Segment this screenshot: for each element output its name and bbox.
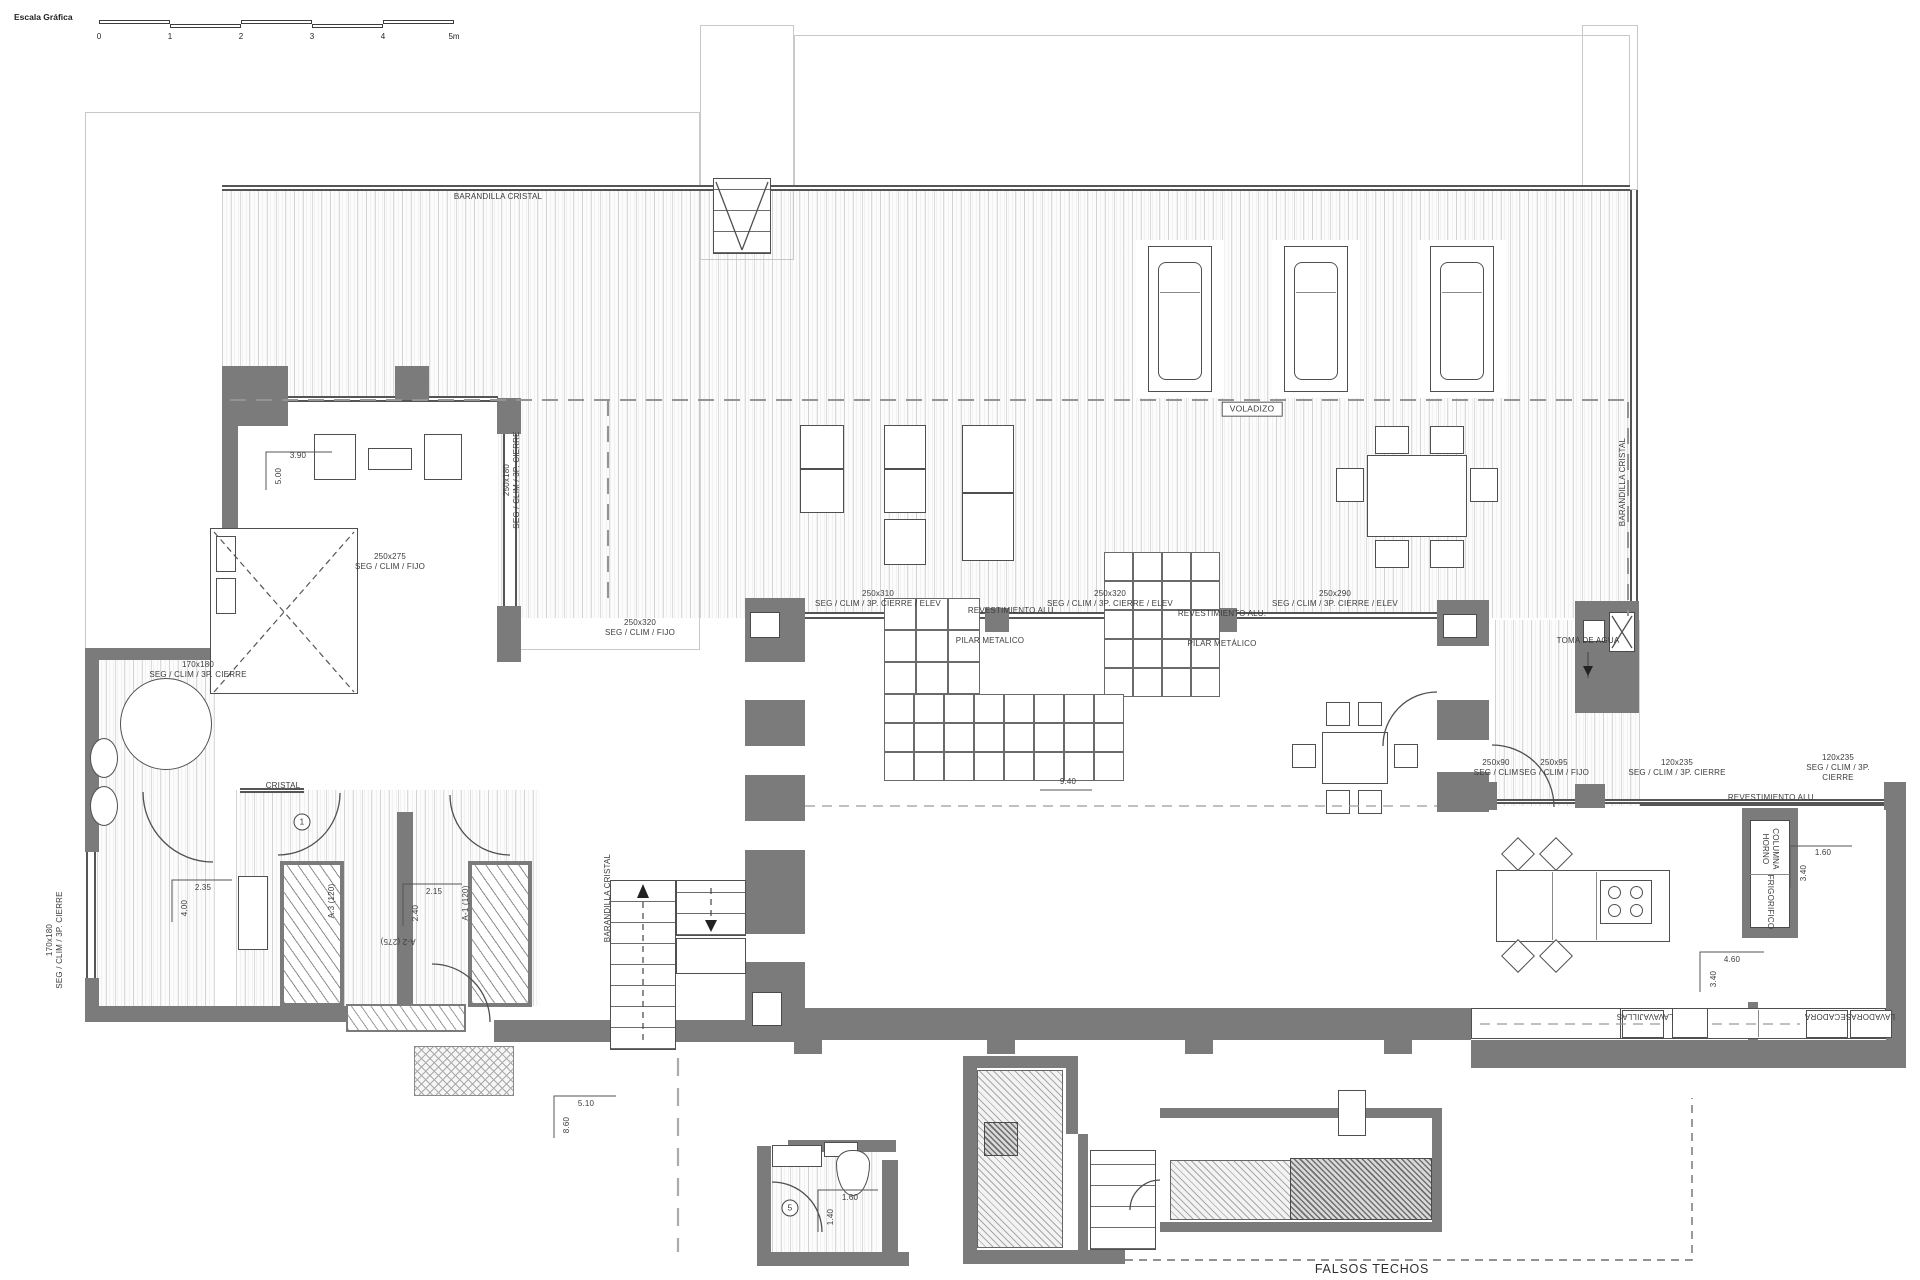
annotation: TOMA DE AGUA [1557,636,1620,646]
annotation: 3.40 [1799,865,1809,881]
annotation: REVESTIMIENTO ALU. [1728,793,1816,803]
annotation: PILAR METÁLICO [1187,639,1256,649]
annotation: 1.60 [1815,848,1831,858]
annotation: 5.10 [578,1099,594,1109]
annotation: 1.60 [842,1193,858,1203]
annotation: 4.00 [180,900,190,916]
annotation: COLUMNA HORNO [1760,828,1780,869]
annotation: SECADORA [1805,1011,1852,1021]
annotation: 5 [782,1200,799,1217]
annotation: 250x180 SEG / CLIM / 3P. CIERRE [502,431,522,528]
annotation: 120x235 SEG / CLIM / 3P. CIERRE [1797,753,1879,783]
annotation: 250x320 SEG / CLIM / 3P. CIERRE / ELEV [1047,589,1173,609]
annotation: REVESTIMIENTO ALU. [1178,609,1266,619]
annotation: CRISTAL [266,781,301,791]
annotation: FRIGORIFICO [1765,875,1775,930]
annotation: 2.35 [195,883,211,893]
annotation: 1 [294,814,311,831]
annotation: VOLADIZO [1222,402,1283,417]
annotation: REVESTIMIENTO ALU. [968,606,1056,616]
annotation: 2.40 [411,905,421,921]
annotation: 1.40 [826,1209,836,1225]
annotation: 4.60 [1724,955,1740,965]
annotation: 120x235 SEG / CLIM / 3P. CIERRE [1628,758,1725,778]
annotation: 250x90 SEG / CLIM [1474,758,1519,778]
annotation: 8.60 [562,1117,572,1133]
annotation: LAVADORA [1851,1011,1895,1021]
annotation: A-2 (275) [380,936,415,946]
floor-plan-canvas: Escala Gráfica 012345m [0,0,1920,1280]
annotation: 9.40 [1060,777,1076,787]
annotation: BARANDILLA CRISTAL [1618,438,1628,526]
annotation: 2.15 [426,887,442,897]
annotation: 5.00 [274,468,284,484]
annotation: 3.90 [290,451,306,461]
annotation: 250x290 SEG / CLIM / 3P. CIERRE / ELEV [1272,589,1398,609]
annotation: 250x95 SEG / CLIM / FIJO [1519,758,1589,778]
annotation: BARANDILLA CRISTAL [603,854,613,942]
annotation: BARANDILLA CRISTAL [454,192,542,202]
annotation: A.3 (120) [327,884,337,919]
annotation: FALSOS TECHOS [1315,1262,1429,1278]
annotation: A-1 (120) [461,885,471,920]
annotation: LAVAVAJILLAS [1617,1011,1674,1021]
annotation: 170x180 SEG / CLIM / 3P. CIERRE [149,660,246,680]
annotation: 170x180 SEG / CLIM / 3P. CIERRE [45,891,65,988]
annotation: 250x275 SEG / CLIM / FIJO [355,552,425,572]
annotation: 3.40 [1709,971,1719,987]
annotation: 250x310 SEG / CLIM / 3P. CIERRE / ELEV [815,589,941,609]
annotation: 250x320 SEG / CLIM / FIJO [605,618,675,638]
plan-annotations: BARANDILLA CRISTAL250x275 SEG / CLIM / F… [0,0,1920,1280]
annotation: PILAR METALICO [956,636,1024,646]
